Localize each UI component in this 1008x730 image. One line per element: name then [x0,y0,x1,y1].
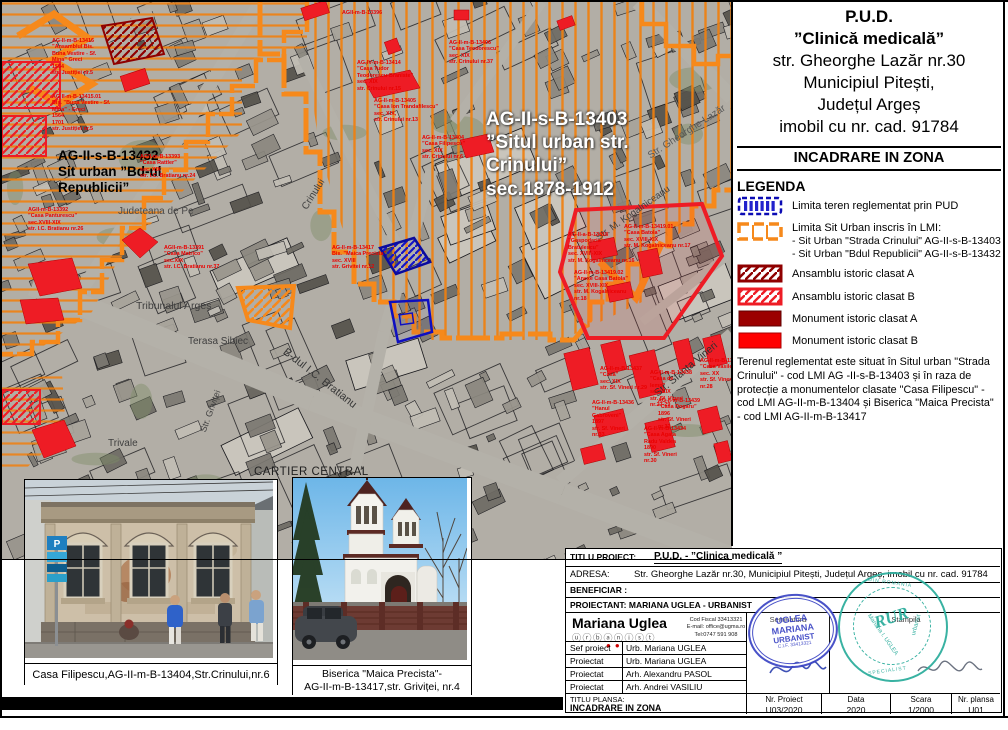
nr-plansa-value: U01 [952,705,1000,715]
scara-value: 1/2000 [891,705,951,715]
legend-note: Terenul reglementat este situat în Situl… [737,356,999,425]
map-canvas [2,2,732,559]
svg-text:P: P [54,539,61,550]
title-line-5: Județul Argeș [735,94,1003,116]
photo-casa-filipescu: P Casa Filipescu,AG-II-m-B-13404,Str.Cri… [24,479,278,685]
legend-label-2: Limita Sit Urban inscris în LMI: [792,222,941,234]
legend-label-2-sub1: - Sit Urban "Strada Crinului" AG-II-s-B-… [792,235,1001,247]
nr-proiect-label: Nr. Proiect [747,695,821,704]
legend-label-5: Monument istoric clasat A [792,313,917,325]
biserica-caption-line1: Biserica "Maica Precista"- [293,668,471,681]
biserica-caption-line2: AG-II-m-B-13417,str. Griviței, nr.4 [293,681,471,694]
legend-label-4: Ansamblu istoric clasat B [792,291,915,303]
sheet-border-right [1003,0,1005,716]
nr-proiect-value: U03/2020 [747,705,821,715]
casa-caption-text: Casa Filipescu,AG-II-m-B-13404,Str.Crinu… [25,669,277,681]
map-panel-divider [731,0,733,546]
legend-label-6: Monument istoric clasat B [792,335,918,347]
plan-sheet: AG-II-s-B-13403 ”Situl urban str. Crinul… [0,0,1008,730]
legend-symbol-ansamblu-a [737,264,783,284]
logo-contact: Cod Fiscal 33413321 E-mail: office@ugma.… [684,617,748,639]
title-line-6: imobil cu nr. cad. 91784 [735,116,1003,138]
titlu-proiect-label-text: TITLU PROIECT: [570,552,636,562]
legend-symbol-pud-limit [737,196,783,216]
bottom-rule [0,716,1008,718]
name-1: Urb. Mariana UGLEA [626,656,706,666]
data-label: Data [822,695,890,704]
legend-symbol-sit-urban [737,222,783,242]
title-line-4: Municipiul Pitești, [735,72,1003,94]
stamp-rur: RUR Mariana I. UGLEA urbanist DIN ROMANI… [838,572,948,682]
name-3: Arh. Andrei VASILIU [626,682,702,692]
role-0: Sef proiect [570,643,611,653]
nr-plansa-label: Nr. plansa [952,695,1000,704]
casa-filipescu-image: P [25,480,273,658]
titlu-proiect-value: P.U.D. - ”Clinica medicală ” [654,551,782,564]
bottom-black-bar [0,697,563,710]
name-2: Arh. Alexandru PASOL [626,669,712,679]
title-line-2: ”Clinică medicală” [735,28,1003,50]
legend-symbol-monument-b [737,331,783,351]
title-line-3: str. Gheorghe Lazăr nr.30 [735,50,1003,72]
stamp-rur-arc-bottom: SPECIALIST [868,665,907,676]
beneficiar-label: BENEFICIAR : [570,585,627,595]
biserica-image [293,478,467,660]
map-bottom-edge [0,559,732,560]
scara-label: Scara [891,695,951,704]
sheet-border-top [0,0,1008,2]
site-label-crinului: AG-II-s-B-13403 ”Situl urban str. Crinul… [486,108,696,201]
legend-label-2-sub2: - Sit Urban "Bdul Republicii" AG-II-s-B-… [792,248,1001,260]
title-line-1: P.U.D. [735,6,1003,28]
project-title: P.U.D. ”Clinică medicală” str. Gheorghe … [735,6,1003,139]
contact-line2: E-mail: office@ugma.ro [684,624,748,631]
casa-caption: Casa Filipescu,AG-II-m-B-13404,Str.Crinu… [25,663,277,686]
adresa-label: ADRESA: [570,569,610,579]
role-1: Proiectat [570,656,604,666]
proiectant-label: PROIECTANT: MARIANA UGLEA - URBANIST [570,600,752,610]
section-header: INCADRARE IN ZONA [735,150,1003,166]
titlu-plansa-value: INCADRARE IN ZONA [570,703,661,713]
titlu-proiect-label: TITLU PROIECT: [570,552,636,562]
biserica-caption: Biserica "Maica Precista"- AG-II-m-B-134… [293,665,471,696]
info-panel: P.U.D. ”Clinică medicală” str. Gheorghe … [735,0,1003,548]
legend-label-1: Limita teren reglementat prin PUD [792,200,958,212]
contact-line3: Tel:0747 591 908 [684,632,748,639]
role-3: Proiectat [570,682,604,692]
name-0: Urb. Mariana UGLEA [626,643,706,653]
legend-label-3: Ansamblu istoric clasat A [792,268,914,280]
role-2: Proiectat [570,669,604,679]
photo-biserica: Biserica "Maica Precista"- AG-II-m-B-134… [292,477,472,695]
data-value: 2020 [822,705,890,715]
site-label-republicii: AG-II-s-B-13432 Sit urban ”Bd-ul Republi… [58,148,218,197]
legend-symbol-monument-a [737,309,783,329]
legend-symbol-ansamblu-b [737,287,783,307]
adresa-value: Str. Gheorghe Lazăr nr.30, Municipiul Pi… [634,569,988,580]
zone-map: AG-II-s-B-13403 ”Situl urban str. Crinul… [2,2,732,559]
logo-name: Mariana Uglea [572,615,667,631]
contact-line1: Cod Fiscal 33413321 [684,617,748,624]
sheet-border-left [0,0,2,716]
legend-heading: LEGENDA [737,178,805,194]
